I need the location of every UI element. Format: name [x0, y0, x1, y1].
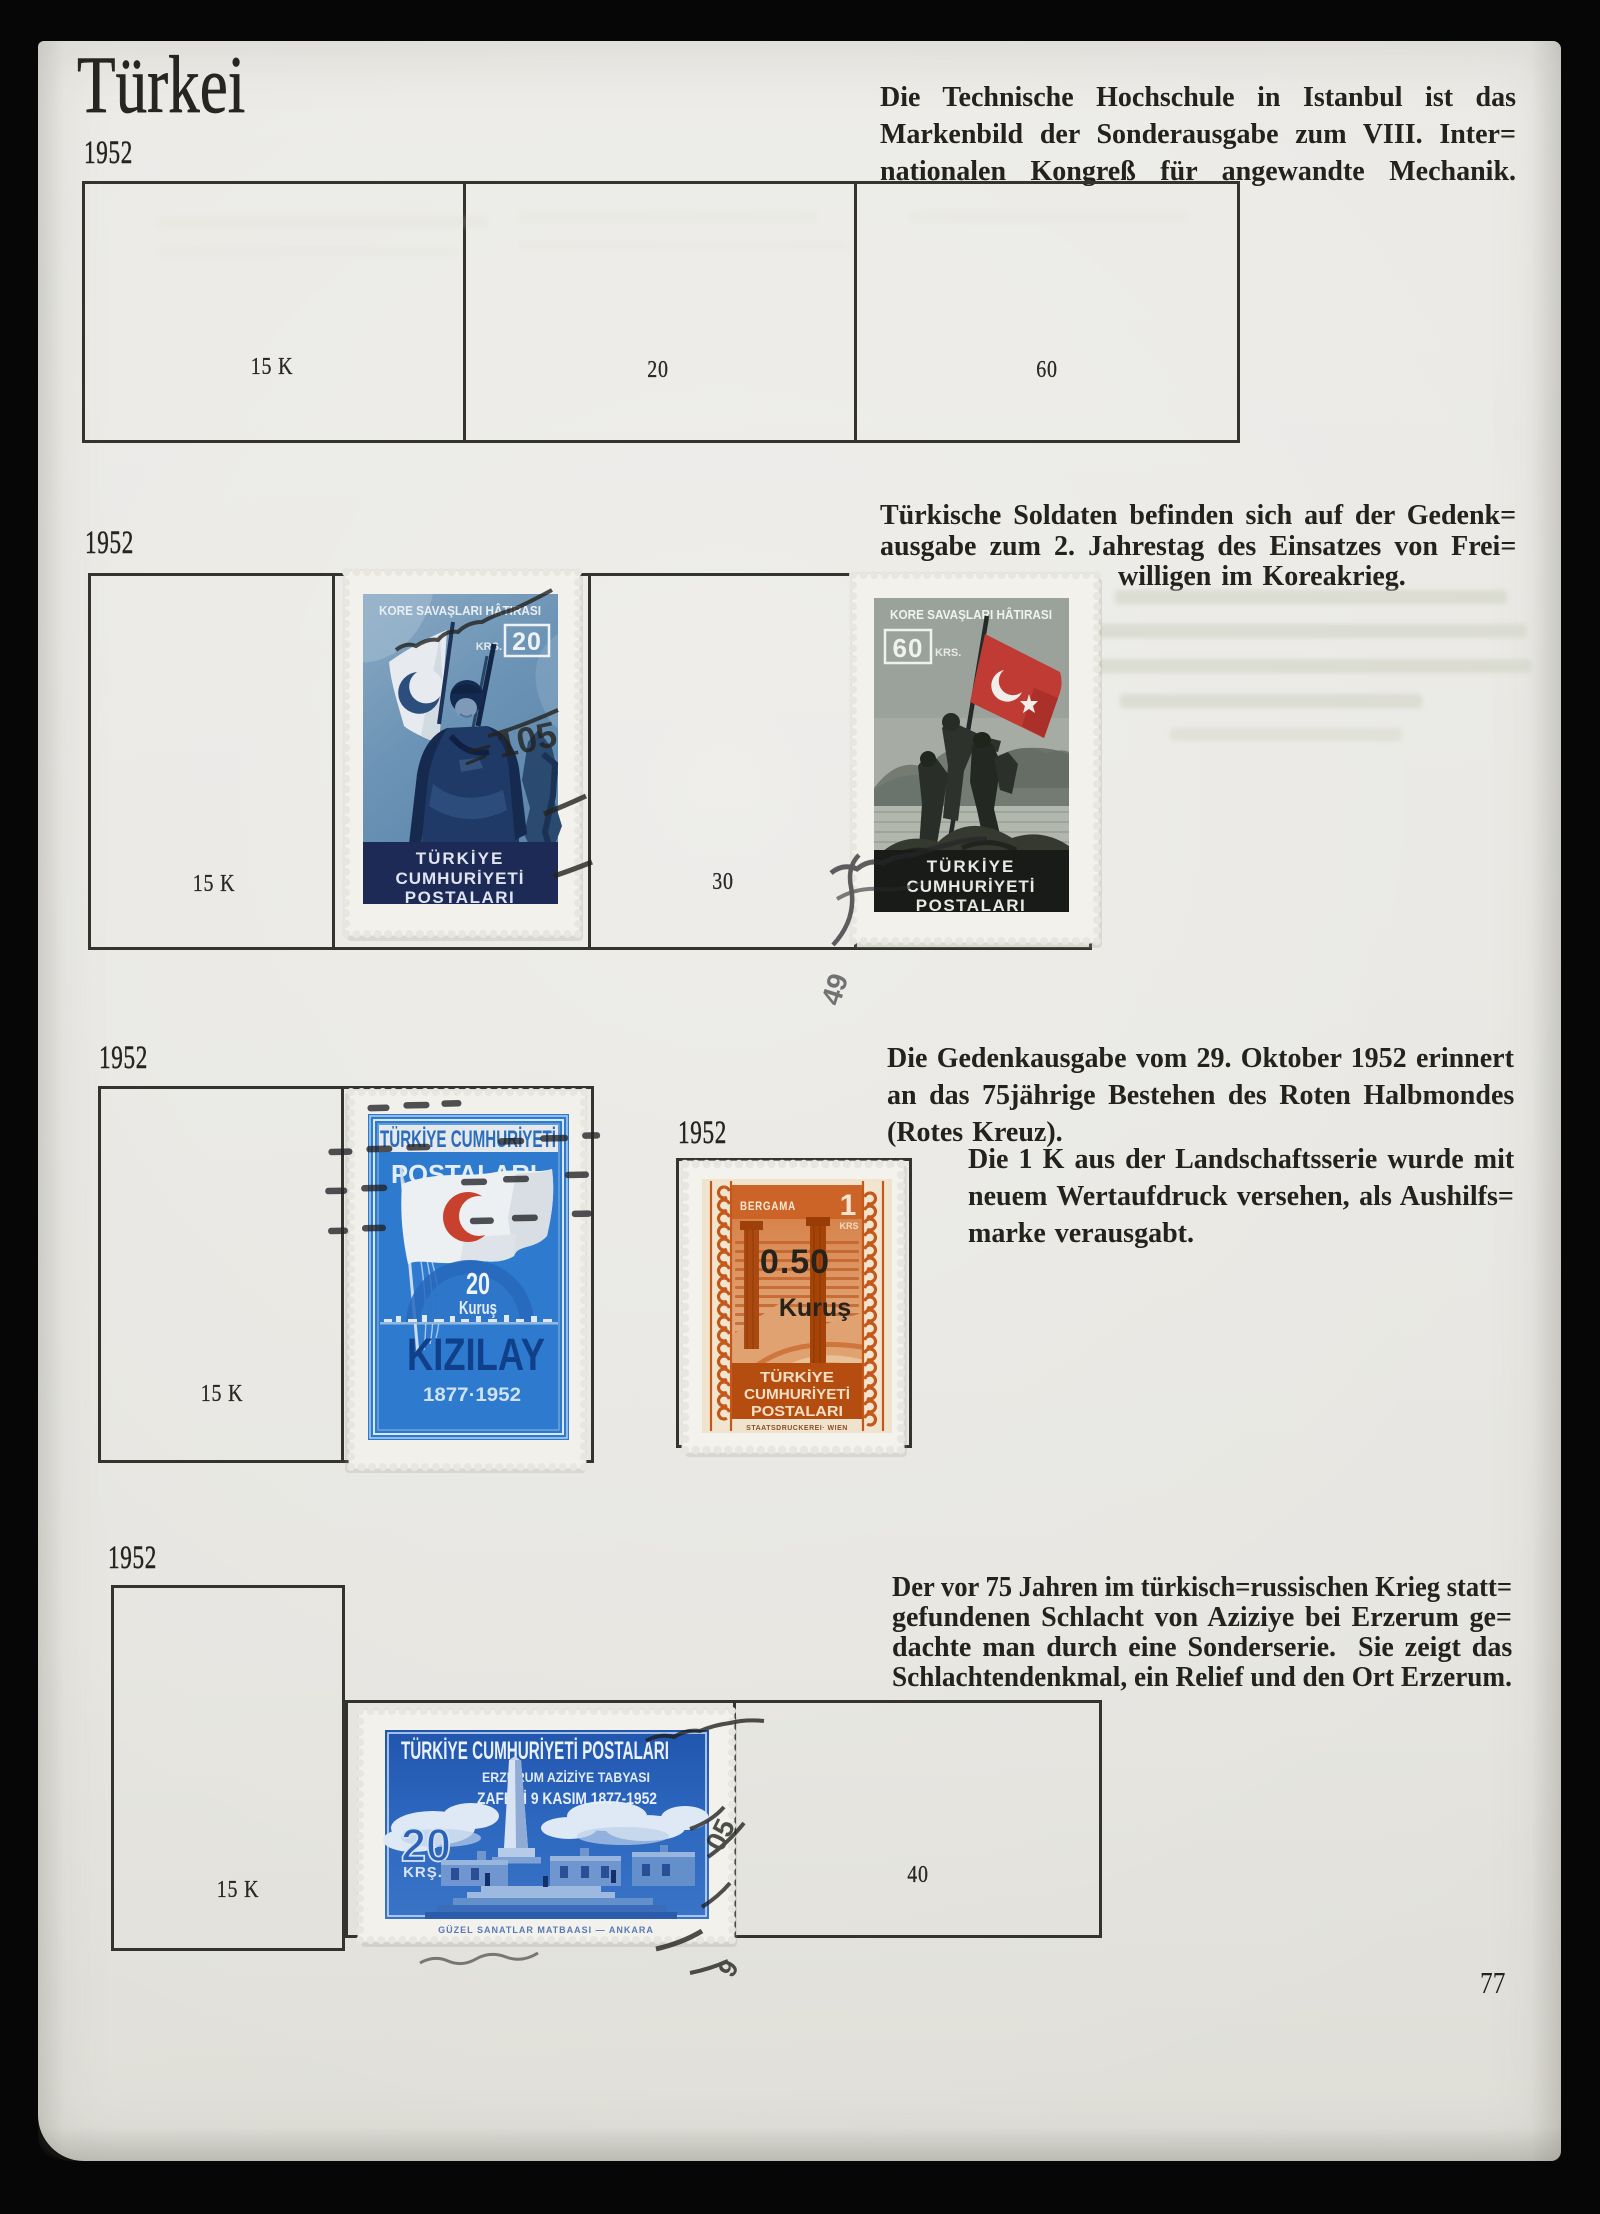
svg-text:KIZILAY: KIZILAY	[407, 1329, 545, 1380]
svg-text:CUMHURİYETİ: CUMHURİYETİ	[395, 869, 524, 888]
svg-text:POSTALARI: POSTALARI	[405, 888, 515, 907]
svg-text:CUMHURİYETİ: CUMHURİYETİ	[906, 877, 1035, 896]
svg-text:1: 1	[840, 1189, 857, 1222]
svg-text:49: 49	[815, 970, 854, 1009]
svg-text:POSTALARI: POSTALARI	[751, 1403, 843, 1420]
svg-text:GÜZEL SANATLAR MATBAASI — ANKA: GÜZEL SANATLAR MATBAASI — ANKARA	[438, 1925, 654, 1935]
svg-text:KORE SAVAŞLARI HÂTIRASI: KORE SAVAŞLARI HÂTIRASI	[379, 603, 541, 618]
svg-text:ERZURUM AZİZİYE TABYASI: ERZURUM AZİZİYE TABYASI	[482, 1769, 650, 1785]
svg-text:TÜRKİYE: TÜRKİYE	[416, 849, 505, 868]
svg-text:KRS.: KRS.	[476, 641, 502, 653]
svg-text:BERGAMA: BERGAMA	[740, 1199, 796, 1213]
svg-text:TÜRKİYE CUMHURİYETİ POSTALARI: TÜRKİYE CUMHURİYETİ POSTALARI	[401, 1736, 669, 1765]
svg-text:STAATSDRUCKEREI· WIEN: STAATSDRUCKEREI· WIEN	[746, 1425, 848, 1432]
svg-text:ZAFERİ 9 KASIM 1877-1952: ZAFERİ 9 KASIM 1877-1952	[477, 1789, 657, 1808]
svg-text:TÜRKİYE: TÜRKİYE	[760, 1369, 834, 1386]
svg-text:20: 20	[466, 1266, 490, 1301]
svg-text:CUMHURİYETİ: CUMHURİYETİ	[744, 1386, 850, 1403]
svg-text:KORE SAVAŞLARI HÂTIRASI: KORE SAVAŞLARI HÂTIRASI	[890, 607, 1052, 622]
svg-text:Kuruş: Kuruş	[779, 1294, 851, 1322]
svg-text:TÜRKİYE: TÜRKİYE	[927, 857, 1016, 876]
svg-text:Kuruş: Kuruş	[459, 1298, 497, 1318]
svg-text:KRS.: KRS.	[935, 647, 961, 659]
svg-text:1877·1952: 1877·1952	[423, 1385, 521, 1406]
svg-text:0.50: 0.50	[760, 1243, 830, 1281]
svg-text:KRŞ.: KRŞ.	[403, 1864, 443, 1881]
svg-text:TÜRKİYE CUMHURİYETİ: TÜRKİYE CUMHURİYETİ	[380, 1126, 556, 1153]
svg-text:20: 20	[512, 628, 542, 656]
svg-text:POSTALARI: POSTALARI	[916, 896, 1026, 915]
svg-text:9: 9	[712, 1954, 745, 1982]
svg-text:60: 60	[893, 633, 924, 663]
svg-text:KRS: KRS	[839, 1221, 858, 1231]
